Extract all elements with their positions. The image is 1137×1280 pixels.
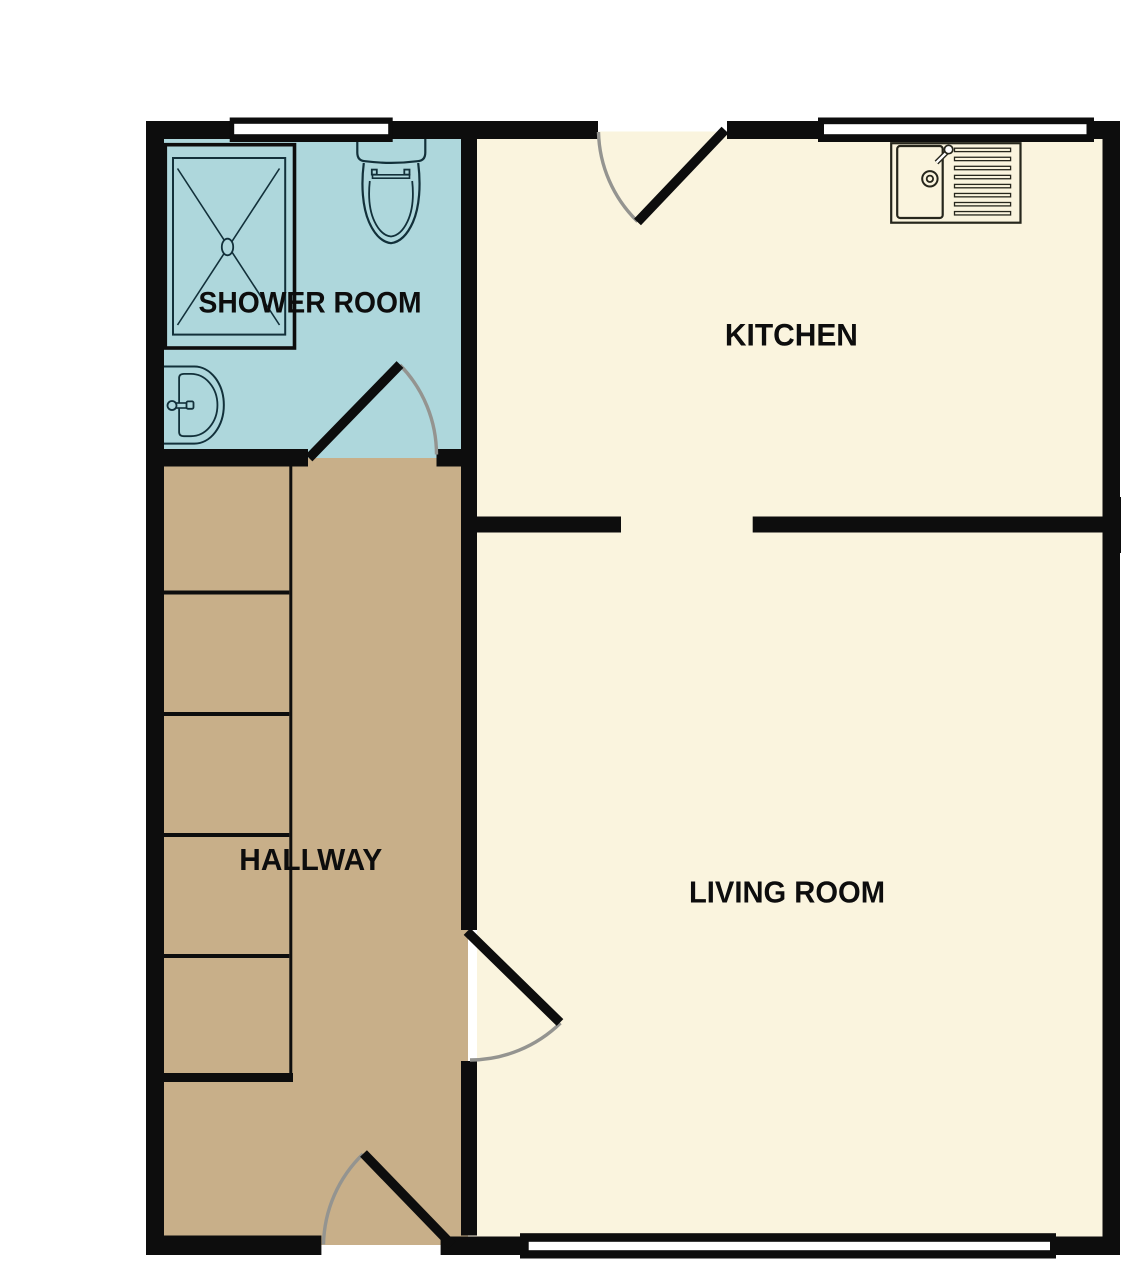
- svg-text:LIVING ROOM: LIVING ROOM: [689, 875, 885, 909]
- svg-text:HALLWAY: HALLWAY: [239, 842, 382, 877]
- svg-text:KITCHEN: KITCHEN: [725, 316, 858, 352]
- svg-text:SHOWER ROOM: SHOWER ROOM: [199, 287, 422, 320]
